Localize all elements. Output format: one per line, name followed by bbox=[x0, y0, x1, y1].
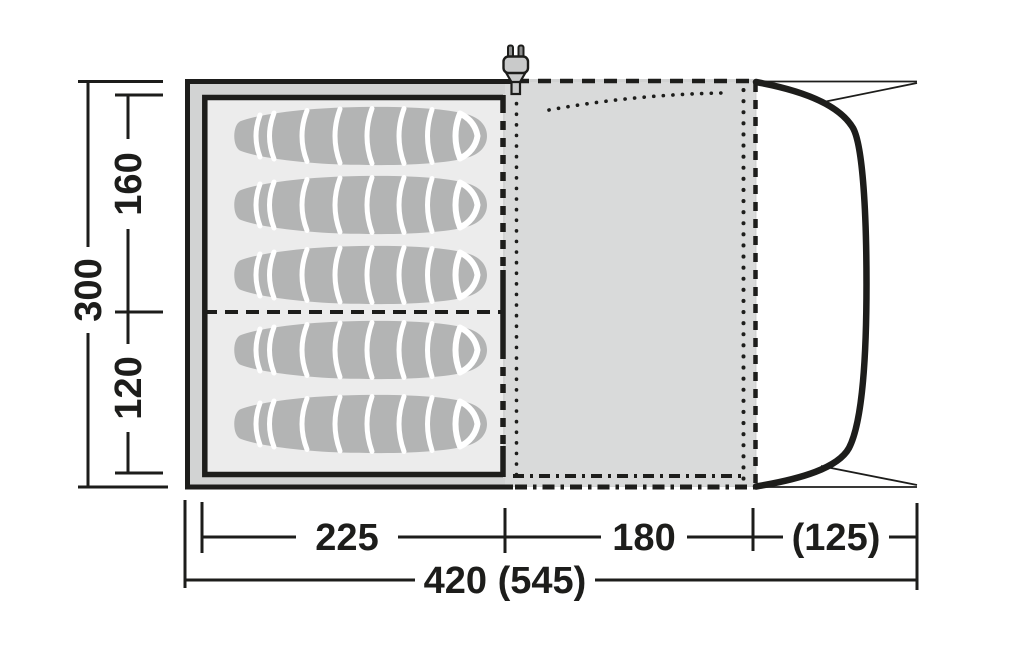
dimension-label-depth-total: 300 bbox=[68, 258, 110, 321]
sleeping-bag bbox=[234, 107, 487, 165]
front-canopy bbox=[756, 82, 917, 488]
tent-floorplan-svg: 300 160 120 225 180 (125) 420 (545) bbox=[0, 0, 1024, 660]
dimension-label-width-canopy: (125) bbox=[792, 517, 881, 559]
dimension-label-width-living: 180 bbox=[612, 517, 675, 559]
dimension-label-width-bedroom: 225 bbox=[315, 517, 378, 559]
sleeping-bag bbox=[234, 321, 487, 379]
dimension-label-width-total: 420 (545) bbox=[424, 560, 587, 602]
canopy-front-pole-curve bbox=[756, 82, 867, 487]
canopy-stay-bottom bbox=[821, 466, 917, 485]
sleeping-bag bbox=[234, 246, 487, 304]
sleeping-bags bbox=[234, 107, 487, 453]
canopy-stay-top bbox=[821, 83, 917, 103]
sleeping-bag bbox=[234, 395, 487, 453]
dimension-label-depth-front: 120 bbox=[108, 356, 150, 419]
sleeping-bag bbox=[234, 176, 487, 234]
tent-floorplan-diagram: 300 160 120 225 180 (125) 420 (545) bbox=[0, 0, 1024, 660]
living-area-floor bbox=[505, 82, 755, 486]
dimension-label-depth-rear: 160 bbox=[108, 152, 150, 215]
